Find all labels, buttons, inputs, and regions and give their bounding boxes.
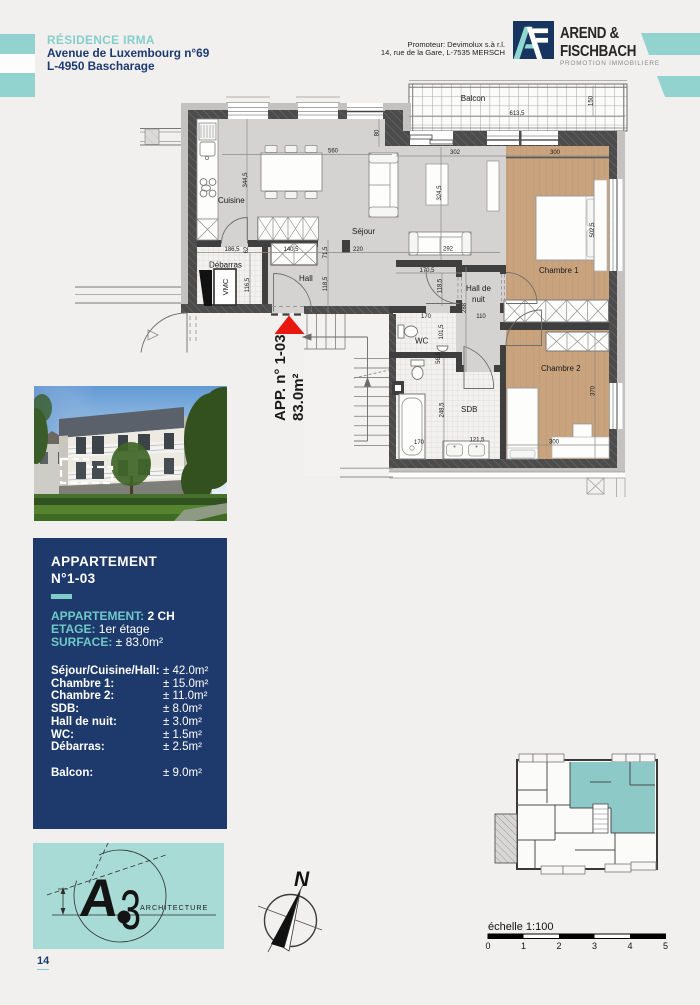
svg-text:N: N [294,868,310,891]
svg-text:613,5: 613,5 [509,111,525,117]
svg-text:nuit: nuit [472,295,486,304]
svg-text:APP. n° 1-03: APP. n° 1-03 [272,334,289,421]
svg-text:Chambre 1: Chambre 1 [539,266,579,275]
svg-text:186,5: 186,5 [224,247,240,253]
svg-text:71,5: 71,5 [323,246,329,258]
svg-text:118,5: 118,5 [438,278,444,293]
svg-text:1: 1 [521,941,526,951]
svg-text:4: 4 [627,941,632,951]
svg-text:560: 560 [328,149,339,155]
svg-text:170: 170 [421,314,432,320]
svg-text:118,5: 118,5 [323,276,329,291]
svg-text:116,5: 116,5 [245,277,251,292]
svg-text:80: 80 [375,129,381,136]
svg-text:56,5: 56,5 [436,352,442,364]
svg-text:3: 3 [592,941,597,951]
svg-text:WC: WC [415,337,429,346]
svg-text:101,5: 101,5 [439,324,445,340]
svg-text:110: 110 [476,314,486,320]
svg-text:SDB: SDB [461,405,477,414]
svg-text:121,5: 121,5 [469,438,485,444]
svg-text:502,5: 502,5 [590,222,596,238]
svg-text:248,5: 248,5 [440,402,446,418]
svg-text:ARCHITECTURE: ARCHITECTURE [140,903,208,912]
svg-text:292: 292 [443,247,454,253]
svg-text:150: 150 [589,95,595,106]
svg-text:170: 170 [414,440,425,446]
svg-text:300: 300 [550,150,561,156]
svg-text:300: 300 [549,440,560,446]
svg-text:62: 62 [244,246,250,253]
svg-text:344,5: 344,5 [243,172,249,188]
svg-text:5: 5 [663,941,668,951]
svg-text:2: 2 [556,941,561,951]
svg-text:220: 220 [353,247,364,253]
svg-text:Hall: Hall [299,274,313,283]
svg-text:0: 0 [485,941,490,951]
svg-text:83.0m²: 83.0m² [290,373,307,421]
svg-text:370: 370 [591,385,597,396]
svg-text:Débarras: Débarras [209,261,242,270]
svg-text:Hall de: Hall de [466,284,491,293]
svg-text:A: A [77,869,121,928]
svg-text:324,5: 324,5 [437,185,443,201]
svg-text:302: 302 [450,150,461,156]
svg-text:288: 288 [462,302,468,313]
svg-text:140,5: 140,5 [283,247,299,253]
svg-text:Séjour: Séjour [352,227,375,236]
svg-text:170,5: 170,5 [419,268,435,274]
svg-text:Chambre 2: Chambre 2 [541,364,581,373]
svg-text:Balcon: Balcon [461,94,485,103]
svg-text:Cuisine: Cuisine [218,196,245,205]
svg-text:VMC: VMC [221,278,230,295]
